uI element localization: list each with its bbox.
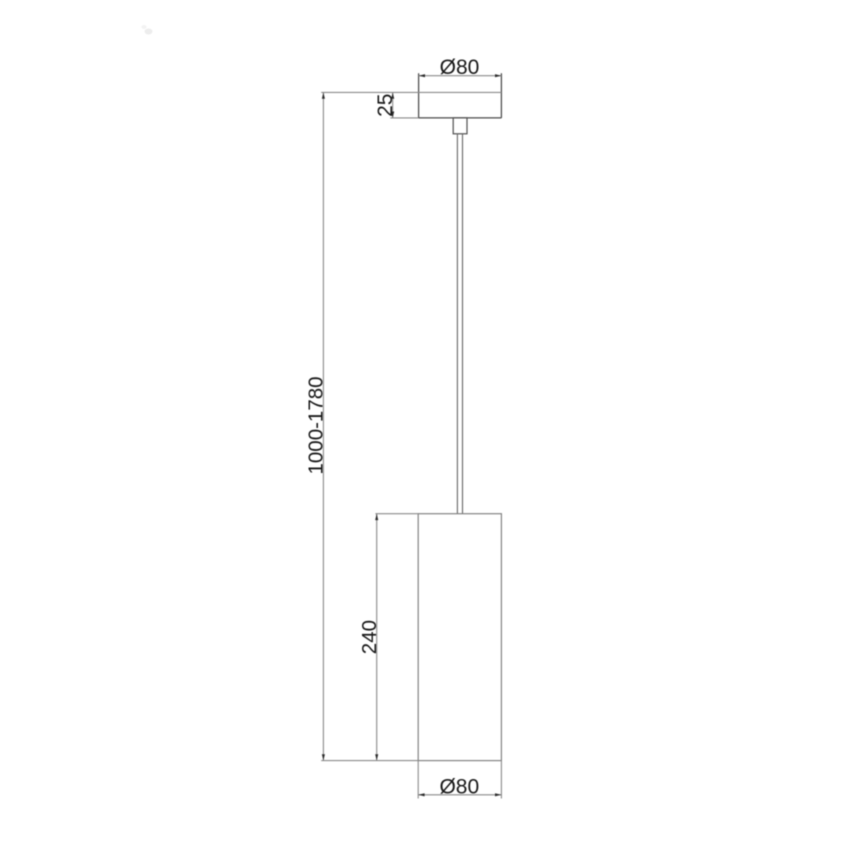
svg-text:1000-1780: 1000-1780	[305, 376, 328, 474]
svg-text:25: 25	[374, 94, 397, 117]
svg-text:Ø80: Ø80	[440, 56, 480, 79]
svg-text:240: 240	[358, 620, 381, 654]
svg-text:Ø80: Ø80	[439, 775, 479, 798]
